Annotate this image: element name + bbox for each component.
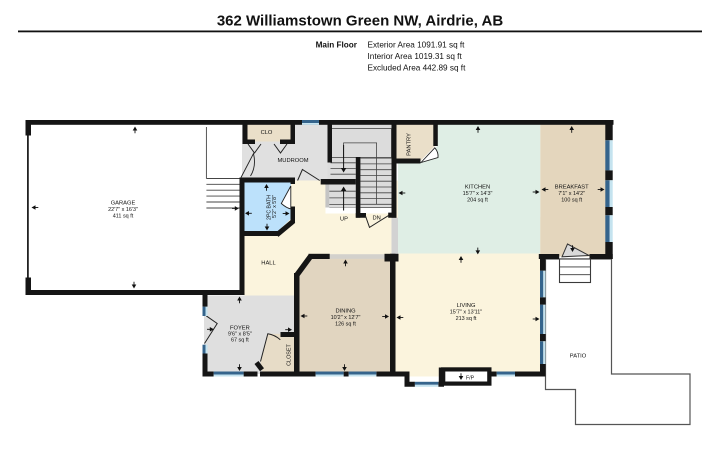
svg-text:67 sq ft: 67 sq ft xyxy=(231,337,249,343)
svg-text:213 sq ft: 213 sq ft xyxy=(456,316,477,322)
svg-text:5'2" x 5'8": 5'2" x 5'8" xyxy=(272,195,278,218)
svg-text:HALL: HALL xyxy=(261,261,275,267)
svg-text:MUDROOM: MUDROOM xyxy=(278,158,309,164)
svg-text:Exterior Area 1091.91 sq ft: Exterior Area 1091.91 sq ft xyxy=(368,40,466,49)
svg-text:411 sq ft: 411 sq ft xyxy=(113,213,134,219)
svg-text:15'7" x 14'3": 15'7" x 14'3" xyxy=(463,191,493,197)
svg-text:204 sq ft: 204 sq ft xyxy=(467,197,488,203)
svg-text:126 sq ft: 126 sq ft xyxy=(335,321,356,327)
svg-text:BREAKFAST: BREAKFAST xyxy=(555,185,589,191)
svg-text:100 sq ft: 100 sq ft xyxy=(561,197,582,203)
svg-text:Excluded Area 442.89 sq ft: Excluded Area 442.89 sq ft xyxy=(368,64,467,73)
svg-text:10'2" x 12'7": 10'2" x 12'7" xyxy=(331,315,361,321)
svg-text:LIVING: LIVING xyxy=(457,303,476,309)
svg-text:Main Floor: Main Floor xyxy=(316,40,358,49)
svg-text:7'1" x 14'2": 7'1" x 14'2" xyxy=(558,191,585,197)
svg-text:F/P: F/P xyxy=(466,375,475,381)
svg-text:15'7" x 13'11": 15'7" x 13'11" xyxy=(450,310,483,316)
svg-text:UP: UP xyxy=(340,217,348,223)
svg-text:KITCHEN: KITCHEN xyxy=(465,185,490,191)
svg-text:CLOSET: CLOSET xyxy=(287,343,293,365)
svg-text:PANTRY: PANTRY xyxy=(407,133,413,156)
svg-text:22'7" x 16'3": 22'7" x 16'3" xyxy=(108,207,138,213)
svg-text:Interior Area 1019.31 sq ft: Interior Area 1019.31 sq ft xyxy=(368,52,463,61)
svg-text:DINING: DINING xyxy=(335,309,356,315)
svg-text:PATIO: PATIO xyxy=(570,354,587,360)
svg-text:DN: DN xyxy=(372,216,380,222)
svg-text:CLO: CLO xyxy=(261,130,273,136)
svg-text:GARAGE: GARAGE xyxy=(111,201,136,207)
svg-text:362 Williamstown Green NW, Air: 362 Williamstown Green NW, Airdrie, AB xyxy=(217,13,503,30)
